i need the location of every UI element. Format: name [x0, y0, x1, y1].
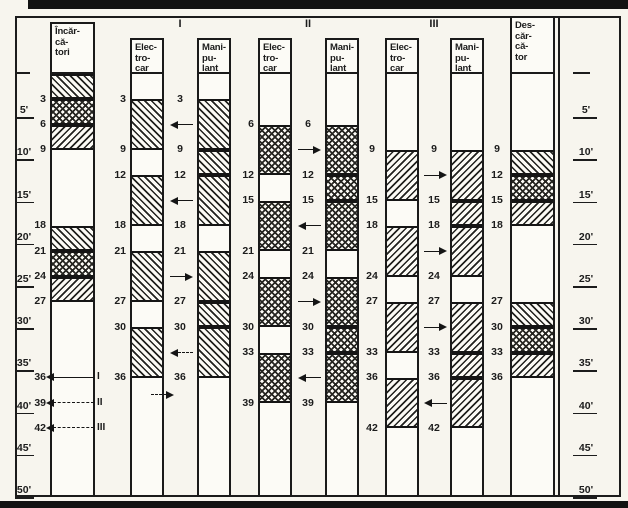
- work-block-incarcatori-18-21: [52, 226, 93, 251]
- group2-mid-numbers-30: 30: [295, 321, 321, 333]
- elec1-left-numbers-3: 3: [100, 93, 126, 105]
- column-manipulant2: Mani-pu-lant: [325, 38, 359, 497]
- descarcator-left-numbers-27: 27: [484, 295, 510, 307]
- time-scale-left-label-15: 15': [14, 189, 34, 201]
- column-header-line: lant: [330, 64, 357, 75]
- time-scale-right-tick-45: [573, 455, 597, 457]
- group1-mid-numbers-30: 30: [167, 321, 193, 333]
- group-label-III: III: [429, 18, 438, 30]
- elec2-left-numbers-15: 15: [228, 194, 254, 206]
- group2-mid-numbers-6: 6: [295, 118, 321, 130]
- column-electrocar2: Elec-tro-car: [258, 38, 292, 497]
- work-block-manipulant2-30-33: [327, 327, 357, 352]
- work-block-manipulant1-27-30: [199, 302, 229, 327]
- time-scale-right-tick-50: [573, 497, 597, 499]
- arrowhead-left: [170, 197, 178, 205]
- time-scale-right-tick-20: [573, 244, 597, 246]
- right-scale-right-border: [619, 16, 621, 497]
- work-block-electrocar3-36-42: [387, 378, 417, 429]
- column-header-line: Elec-: [390, 43, 417, 54]
- group2-mid-numbers-12: 12: [295, 169, 321, 181]
- work-block-electrocar1-3-9: [132, 99, 162, 150]
- time-scale-left-label-45: 45': [14, 442, 34, 454]
- group2-mid-numbers-15: 15: [295, 194, 321, 206]
- column-header-electrocar3: Elec-tro-car: [387, 40, 417, 74]
- return-arrowhead-III: [46, 424, 54, 432]
- work-block-manipulant1-30-36: [199, 327, 229, 378]
- arrowhead-left: [298, 222, 306, 230]
- column-header-line: tor: [515, 53, 553, 64]
- group3-mid-numbers-15: 15: [421, 194, 447, 206]
- arrow-shaft: [298, 149, 313, 150]
- column-header-line: Mani-: [455, 43, 482, 54]
- arrowhead-left: [424, 399, 432, 407]
- work-block-manipulant3-9-15: [452, 150, 482, 201]
- column-header-line: Mani-: [330, 43, 357, 54]
- work-block-descarcator-15-18: [512, 201, 553, 226]
- work-block-manipulant3-33-36: [452, 353, 482, 378]
- time-scale-right-label-30: 30': [574, 315, 598, 327]
- travel-arrow-group2-t27: [298, 297, 321, 306]
- return-arrowhead-I: [46, 373, 54, 381]
- column-header-electrocar1: Elec-tro-car: [132, 40, 162, 74]
- arrowhead-right: [439, 171, 447, 179]
- return-arrow-line-III: [53, 427, 94, 428]
- scanned-cyclogram-page: I II III Încăr-că-toriElec-tro-carMani-p…: [0, 0, 628, 508]
- time-scale-left-tick-15: [15, 202, 34, 204]
- work-block-manipulant2-6-12: [327, 125, 357, 176]
- column-header-line: lant: [455, 64, 482, 75]
- work-block-manipulant2-33-39: [327, 353, 357, 404]
- time-scale-left-label-5: 5': [14, 104, 34, 116]
- column-header-line: Elec-: [263, 43, 290, 54]
- time-scale-left-zero-mark: [16, 72, 30, 74]
- travel-arrow-group2-t9: [298, 145, 321, 154]
- work-block-incarcatori-3-6: [52, 99, 93, 124]
- work-block-manipulant3-18-24: [452, 226, 482, 277]
- arrow-shaft: [306, 225, 321, 226]
- elec2-left-numbers-24: 24: [228, 270, 254, 282]
- elec3-left-numbers-9: 9: [359, 143, 385, 155]
- page-bottom-edge-bar: [0, 501, 628, 508]
- arrowhead-right: [166, 391, 174, 399]
- elec1-left-numbers-9: 9: [100, 143, 126, 155]
- time-scale-right-label-40: 40': [574, 400, 598, 412]
- group-label-II: II: [305, 18, 311, 30]
- travel-arrow-group3-t21: [424, 247, 447, 256]
- arrowhead-right: [313, 146, 321, 154]
- elec2-left-numbers-12: 12: [228, 169, 254, 181]
- work-block-descarcator-27-30: [512, 302, 553, 327]
- work-block-incarcatori-6-9: [52, 125, 93, 150]
- column-header-electrocar2: Elec-tro-car: [260, 40, 290, 74]
- work-block-electrocar1-12-18: [132, 175, 162, 226]
- scale-left-numbers-6: 6: [26, 118, 46, 130]
- group-label-I: I: [178, 18, 181, 30]
- group2-mid-numbers-39: 39: [295, 397, 321, 409]
- group1-mid-numbers-9: 9: [167, 143, 193, 155]
- time-scale-right-label-35: 35': [574, 357, 598, 369]
- group3-mid-numbers-27: 27: [421, 295, 447, 307]
- group1-mid-numbers-36: 36: [167, 371, 193, 383]
- elec1-left-numbers-36: 36: [100, 371, 126, 383]
- travel-arrow-group2-t36: [298, 373, 321, 382]
- column-header-line: Des-: [515, 21, 553, 32]
- time-scale-left-label-35: 35': [14, 357, 34, 369]
- time-scale-right-label-20: 20': [574, 231, 598, 243]
- group3-mid-numbers-33: 33: [421, 346, 447, 358]
- work-block-manipulant3-27-33: [452, 302, 482, 353]
- column-electrocar1: Elec-tro-car: [130, 38, 164, 497]
- elec2-left-numbers-6: 6: [228, 118, 254, 130]
- work-block-electrocar2-6-12: [260, 125, 290, 176]
- group3-mid-numbers-9: 9: [421, 143, 447, 155]
- column-header-line: că-: [515, 42, 553, 53]
- work-block-descarcator-33-36: [512, 353, 553, 378]
- column-header-line: car: [390, 64, 417, 75]
- work-block-incarcatori-24-27: [52, 277, 93, 302]
- group1-mid-numbers-12: 12: [167, 169, 193, 181]
- arrowhead-right: [439, 323, 447, 331]
- elec1-left-numbers-27: 27: [100, 295, 126, 307]
- time-scale-left-tick-50: [15, 497, 34, 499]
- arrowhead-right: [185, 273, 193, 281]
- descarcator-left-numbers-36: 36: [484, 371, 510, 383]
- column-header-line: Elec-: [135, 43, 162, 54]
- time-scale-right-tick-10: [573, 159, 597, 161]
- column-incarcatori: Încăr-că-tori: [50, 22, 95, 497]
- time-scale-right-tick-40: [573, 413, 597, 415]
- elec2-left-numbers-21: 21: [228, 245, 254, 257]
- scale-left-numbers-18: 18: [26, 219, 46, 231]
- work-block-electrocar2-15-21: [260, 201, 290, 252]
- arrow-shaft: [306, 377, 321, 378]
- time-scale-right-tick-15: [573, 202, 597, 204]
- column-header-manipulant3: Mani-pu-lant: [452, 40, 482, 74]
- scale-left-numbers-21: 21: [26, 245, 46, 257]
- column-header-line: Încăr-: [55, 27, 93, 38]
- descarcator-left-numbers-30: 30: [484, 321, 510, 333]
- time-scale-left-tick-10: [15, 159, 34, 161]
- work-block-manipulant1-9-12: [199, 150, 229, 175]
- time-scale-left-label-20: 20': [14, 231, 34, 243]
- time-scale-left-tick-40: [15, 413, 34, 415]
- column-header-descarcator: Des-căr-că-tor: [512, 18, 553, 74]
- elec3-left-numbers-15: 15: [359, 194, 385, 206]
- arrow-shaft: [298, 301, 313, 302]
- arrowhead-left: [170, 349, 178, 357]
- column-header-line: car: [135, 64, 162, 75]
- work-block-manipulant3-15-18: [452, 201, 482, 226]
- column-header-line: Mani-: [202, 43, 229, 54]
- time-scale-right-zero-mark: [573, 72, 590, 74]
- time-scale-left-tick-5: [15, 117, 34, 119]
- time-scale-left-label-30: 30': [14, 315, 34, 327]
- time-scale-right-label-45: 45': [574, 442, 598, 454]
- arrow-shaft: [178, 200, 193, 201]
- elec1-left-numbers-21: 21: [100, 245, 126, 257]
- work-block-electrocar3-9-15: [387, 150, 417, 201]
- arrow-shaft: [151, 394, 166, 395]
- travel-arrow-group3-t39: [424, 399, 447, 408]
- column-header-manipulant1: Mani-pu-lant: [199, 40, 229, 74]
- time-scale-right-tick-5: [573, 117, 597, 119]
- group2-mid-numbers-33: 33: [295, 346, 321, 358]
- elec3-left-numbers-36: 36: [359, 371, 385, 383]
- work-block-electrocar1-30-36: [132, 327, 162, 378]
- group2-mid-numbers-24: 24: [295, 270, 321, 282]
- descarcator-left-numbers-12: 12: [484, 169, 510, 181]
- work-block-electrocar3-27-33: [387, 302, 417, 353]
- arrow-shaft: [178, 124, 193, 125]
- scale-left-numbers-27: 27: [26, 295, 46, 307]
- work-block-manipulant1-12-18: [199, 175, 229, 226]
- elec3-left-numbers-24: 24: [359, 270, 385, 282]
- arrowhead-right: [439, 247, 447, 255]
- elec2-left-numbers-39: 39: [228, 397, 254, 409]
- column-header-incarcatori: Încăr-că-tori: [52, 24, 93, 74]
- work-block-electrocar3-18-24: [387, 226, 417, 277]
- time-scale-left-label-40: 40': [14, 400, 34, 412]
- elec1-left-numbers-30: 30: [100, 321, 126, 333]
- work-block-incarcatori-21-24: [52, 251, 93, 276]
- group3-mid-numbers-18: 18: [421, 219, 447, 231]
- work-block-descarcator-9-12: [512, 150, 553, 175]
- time-scale-right-label-50: 50': [574, 484, 598, 496]
- work-block-descarcator-12-15: [512, 175, 553, 200]
- elec3-left-numbers-33: 33: [359, 346, 385, 358]
- travel-arrow-group1-t15: [170, 196, 193, 205]
- column-manipulant1: Mani-pu-lant: [197, 38, 231, 497]
- time-scale-left-tick-20: [15, 244, 34, 246]
- arrow-shaft: [178, 352, 193, 353]
- group3-mid-numbers-24: 24: [421, 270, 447, 282]
- time-scale-left-tick-35: [15, 370, 34, 372]
- time-scale-left-label-50: 50': [14, 484, 34, 496]
- time-scale-left-tick-45: [15, 455, 34, 457]
- column-header-line: tori: [55, 48, 93, 59]
- time-scale-right-tick-25: [573, 286, 597, 288]
- elec2-left-numbers-33: 33: [228, 346, 254, 358]
- travel-arrow-group3-t12: [424, 171, 447, 180]
- time-scale-left-tick-30: [15, 328, 34, 330]
- time-scale-right-label-15: 15': [574, 189, 598, 201]
- time-scale-left-tick-25: [15, 286, 34, 288]
- return-arrow-line-I: [53, 377, 94, 378]
- descarcator-left-numbers-15: 15: [484, 194, 510, 206]
- scale-left-numbers-3: 3: [26, 93, 46, 105]
- work-block-manipulant1-21-27: [199, 251, 229, 302]
- column-header-line: lant: [202, 64, 229, 75]
- return-arrow-roman-II: II: [97, 397, 103, 409]
- group3-mid-numbers-42: 42: [421, 422, 447, 434]
- extra-return-arrow-elec1: [151, 390, 174, 399]
- travel-arrow-group1-t33: [170, 348, 193, 357]
- time-scale-right-label-5: 5': [574, 104, 598, 116]
- descarcator-left-numbers-33: 33: [484, 346, 510, 358]
- column-manipulant3: Mani-pu-lant: [450, 38, 484, 497]
- group3-mid-numbers-36: 36: [421, 371, 447, 383]
- work-block-incarcatori-0-3: [52, 74, 93, 99]
- arrow-shaft: [432, 403, 447, 404]
- work-block-electrocar1-21-27: [132, 251, 162, 302]
- time-scale-right-label-10: 10': [574, 146, 598, 158]
- work-block-manipulant1-3-9: [199, 99, 229, 150]
- work-block-manipulant3-36-42: [452, 378, 482, 429]
- return-arrow-roman-I: I: [97, 371, 100, 383]
- right-scale-left-border: [558, 16, 560, 497]
- arrow-shaft: [170, 276, 185, 277]
- group2-mid-numbers-21: 21: [295, 245, 321, 257]
- group1-mid-numbers-21: 21: [167, 245, 193, 257]
- descarcator-left-numbers-18: 18: [484, 219, 510, 231]
- arrowhead-left: [170, 121, 178, 129]
- elec2-left-numbers-30: 30: [228, 321, 254, 333]
- time-scale-left-label-25: 25': [14, 273, 34, 285]
- arrow-shaft: [424, 175, 439, 176]
- work-block-descarcator-30-33: [512, 327, 553, 352]
- time-scale-right-label-25: 25': [574, 273, 598, 285]
- column-header-manipulant2: Mani-pu-lant: [327, 40, 357, 74]
- group1-mid-numbers-18: 18: [167, 219, 193, 231]
- arrow-shaft: [424, 327, 439, 328]
- column-descarcator: Des-căr-că-tor: [510, 16, 555, 497]
- travel-arrow-group3-t30: [424, 323, 447, 332]
- descarcator-left-numbers-9: 9: [484, 143, 510, 155]
- scale-left-numbers-36: 36: [26, 371, 46, 383]
- time-scale-left-label-10: 10': [14, 146, 34, 158]
- page-top-edge-bar: [28, 0, 628, 9]
- chart-left-border: [15, 16, 17, 497]
- work-block-electrocar2-24-30: [260, 277, 290, 328]
- return-arrowhead-II: [46, 399, 54, 407]
- arrowhead-right: [313, 298, 321, 306]
- elec3-left-numbers-27: 27: [359, 295, 385, 307]
- return-arrow-roman-III: III: [97, 422, 105, 434]
- scale-left-numbers-42: 42: [26, 422, 46, 434]
- group1-mid-numbers-3: 3: [167, 93, 193, 105]
- column-header-line: car: [263, 64, 290, 75]
- work-block-electrocar2-33-39: [260, 353, 290, 404]
- group1-mid-numbers-27: 27: [167, 295, 193, 307]
- work-block-manipulant2-15-21: [327, 201, 357, 252]
- travel-arrow-group1-t24: [170, 272, 193, 281]
- elec3-left-numbers-18: 18: [359, 219, 385, 231]
- travel-arrow-group1-t6: [170, 120, 193, 129]
- work-block-manipulant2-12-15: [327, 175, 357, 200]
- work-block-manipulant2-24-30: [327, 277, 357, 328]
- time-scale-right-tick-35: [573, 370, 597, 372]
- time-scale-right-tick-30: [573, 328, 597, 330]
- return-arrow-line-II: [53, 402, 94, 403]
- elec1-left-numbers-12: 12: [100, 169, 126, 181]
- elec3-left-numbers-42: 42: [359, 422, 385, 434]
- elec1-left-numbers-18: 18: [100, 219, 126, 231]
- arrow-shaft: [424, 251, 439, 252]
- travel-arrow-group2-t18: [298, 221, 321, 230]
- column-electrocar3: Elec-tro-car: [385, 38, 419, 497]
- arrowhead-left: [298, 374, 306, 382]
